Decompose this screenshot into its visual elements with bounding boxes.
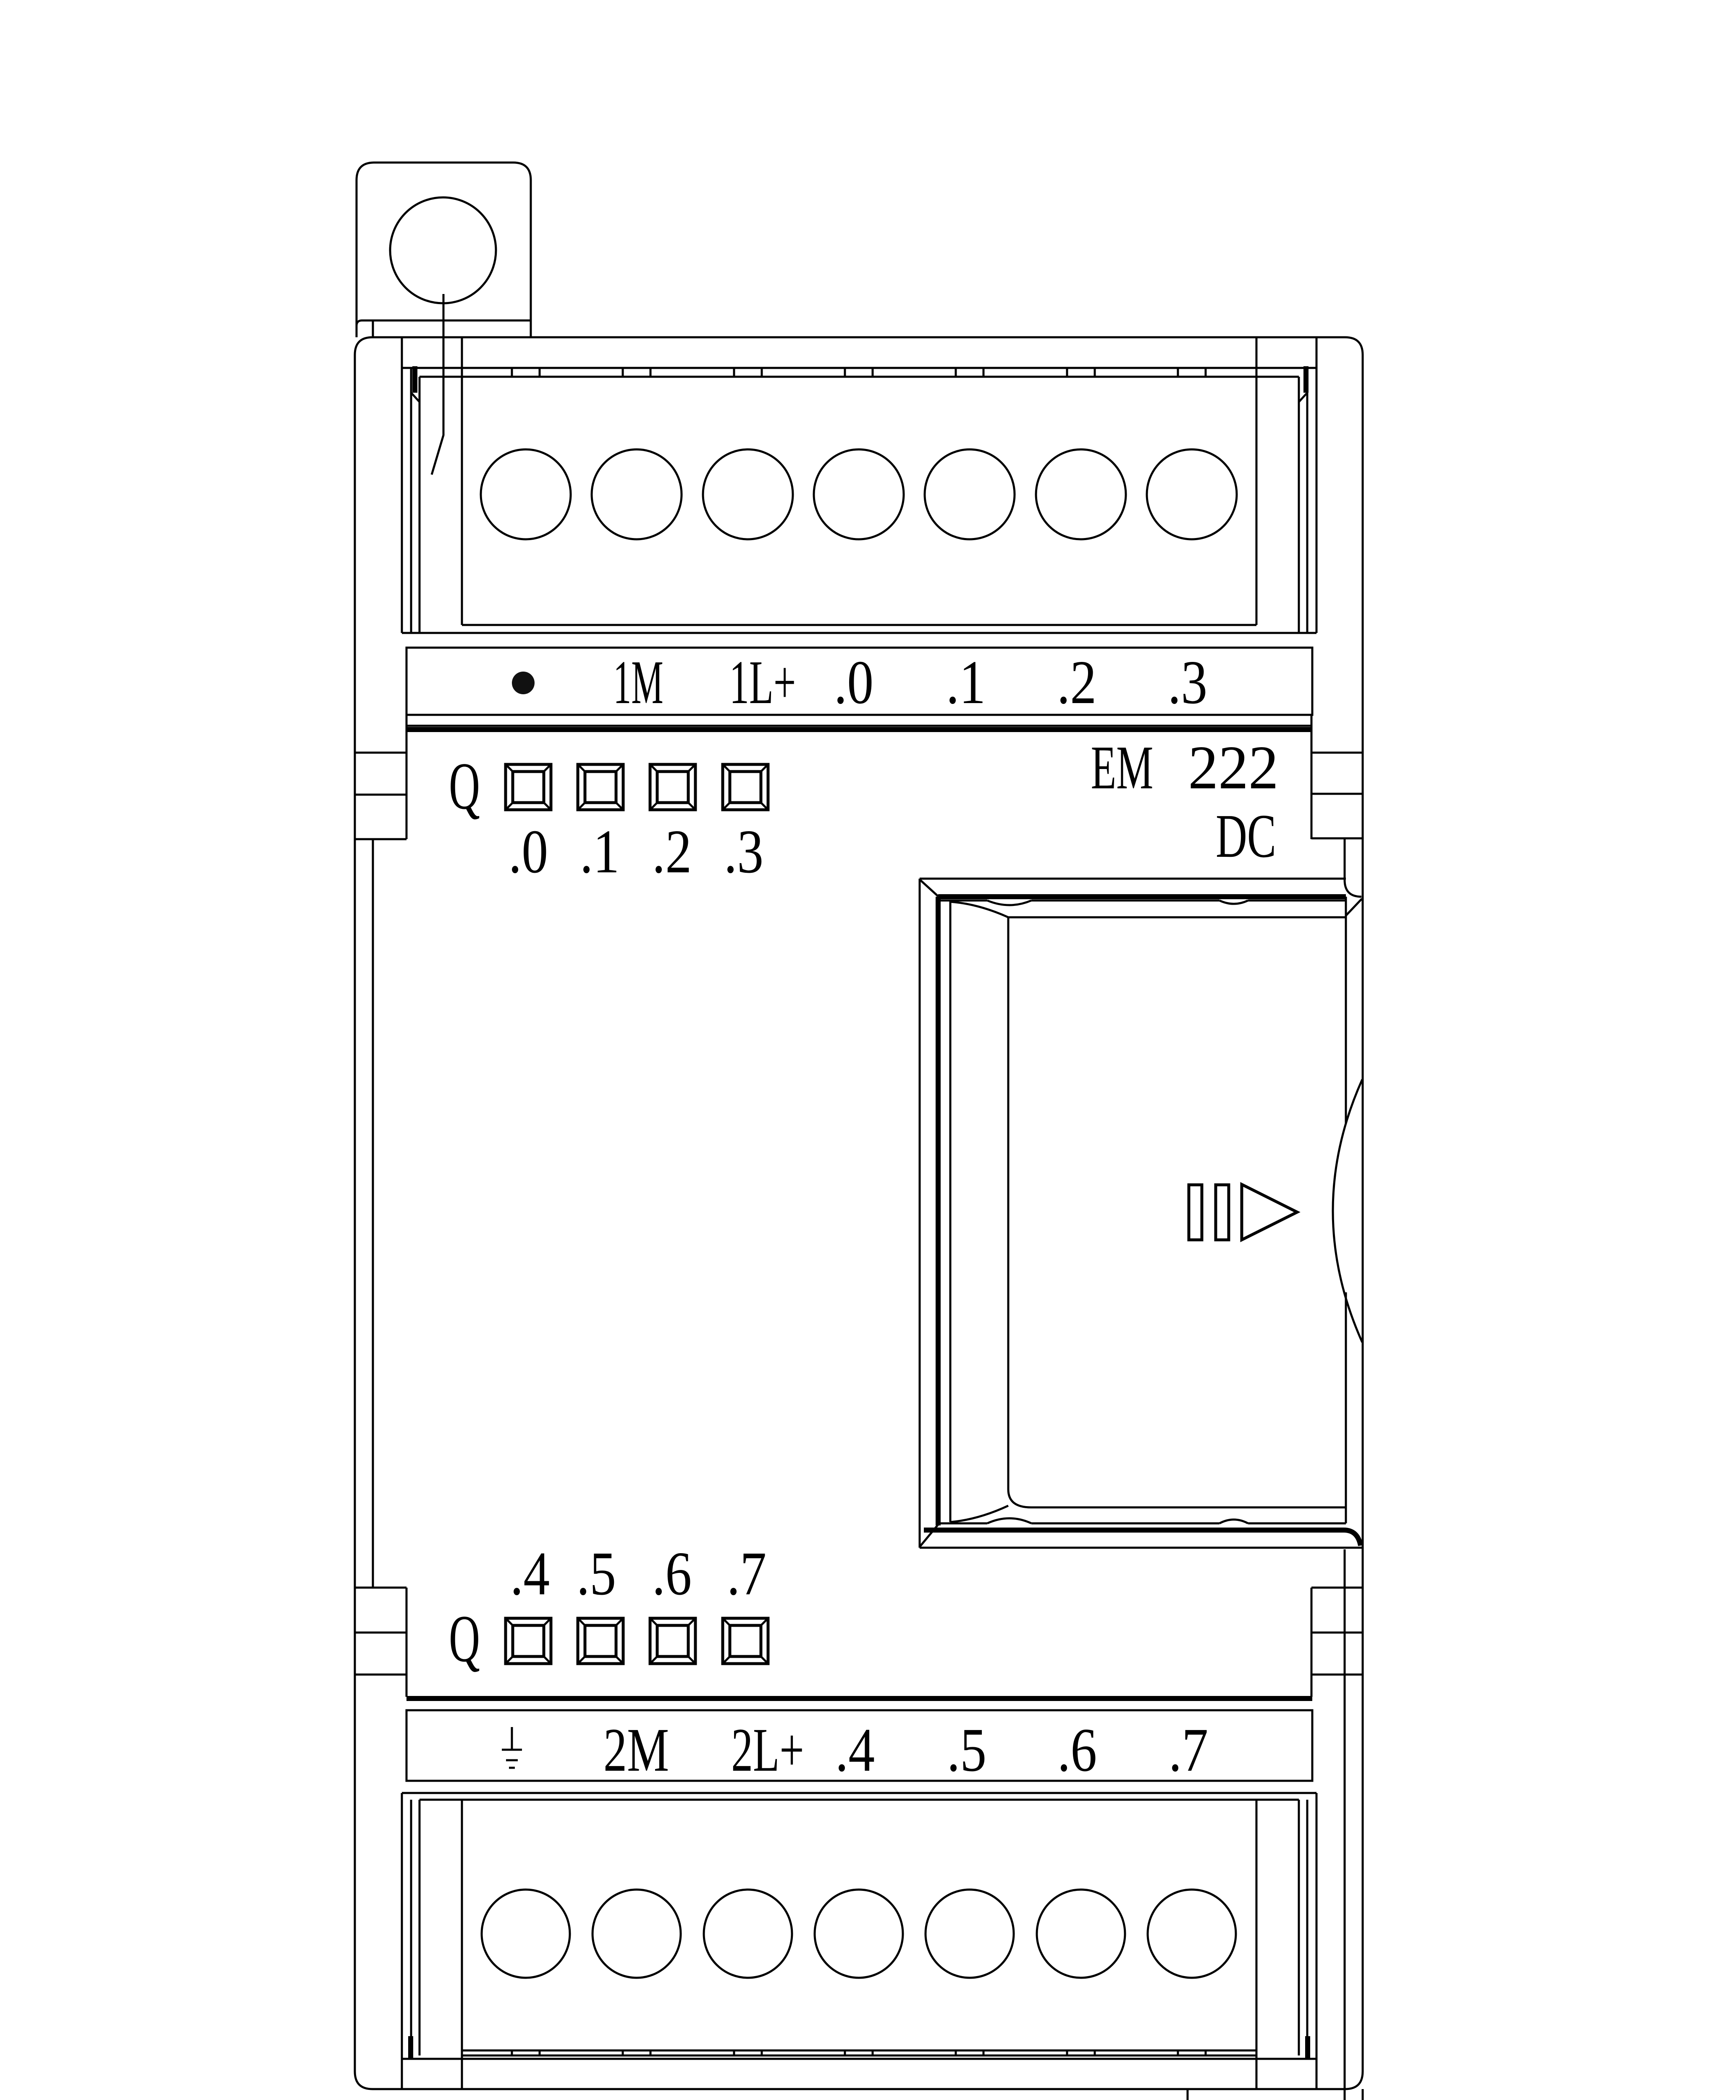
svg-text:.7: .7: [727, 1539, 766, 1608]
svg-text:.3: .3: [724, 817, 763, 886]
svg-text:.4: .4: [510, 1539, 550, 1608]
svg-text:DC: DC: [1216, 801, 1276, 871]
svg-text:.6: .6: [652, 1539, 692, 1608]
svg-text:.3: .3: [1168, 648, 1207, 717]
svg-text:2L+: 2L+: [731, 1715, 804, 1785]
svg-text:.6: .6: [1057, 1716, 1097, 1785]
svg-text:.7: .7: [1169, 1716, 1208, 1785]
svg-text:.5: .5: [947, 1716, 986, 1785]
svg-text:.0: .0: [834, 648, 873, 717]
svg-text:.1: .1: [946, 648, 986, 717]
svg-text:Q: Q: [449, 1601, 480, 1676]
svg-text:1M: 1M: [613, 648, 663, 717]
svg-text:.2: .2: [1057, 648, 1096, 717]
svg-text:.2: .2: [652, 817, 692, 886]
svg-text:2M: 2M: [603, 1716, 669, 1784]
svg-text:1L+: 1L+: [729, 648, 796, 717]
svg-text:.5: .5: [577, 1539, 616, 1608]
svg-text:222: 222: [1188, 733, 1278, 802]
svg-text:EM: EM: [1091, 734, 1154, 802]
svg-text:.4: .4: [835, 1716, 875, 1785]
svg-text:.1: .1: [580, 817, 619, 886]
svg-text:.0: .0: [509, 817, 548, 886]
svg-text:Q: Q: [449, 749, 480, 823]
